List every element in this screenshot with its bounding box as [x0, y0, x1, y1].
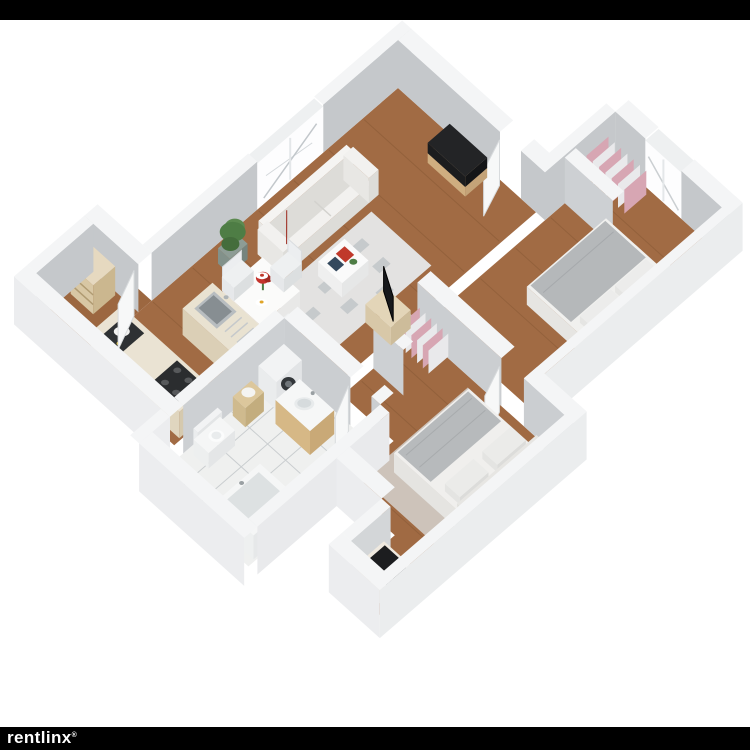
rentlinx-logo-mark: ® — [72, 732, 78, 739]
floorplan-3d-render — [0, 0, 750, 750]
vanity-faucet — [311, 391, 315, 395]
toilet-seat-inner — [211, 432, 221, 440]
stove-burner — [184, 378, 192, 384]
washer-door-glass — [285, 381, 292, 387]
bottom-frame-bar — [0, 727, 750, 750]
rentlinx-logo: rentlinx® — [7, 726, 77, 748]
floorplan-page: rentlinx® — [0, 0, 750, 750]
basket-towels — [241, 387, 255, 397]
bathtub-faucet — [239, 481, 244, 485]
plant-foliage — [221, 237, 239, 251]
dining-food — [260, 274, 264, 277]
top-frame-bar — [0, 0, 750, 20]
island-faucet — [224, 295, 229, 299]
stove-burner — [161, 380, 169, 386]
stove-burner — [173, 368, 181, 374]
coffee-table-plant — [349, 259, 357, 265]
dining-food — [260, 301, 264, 304]
rentlinx-logo-text: rentlinx — [7, 728, 72, 747]
vanity-sink-basin — [297, 399, 311, 408]
